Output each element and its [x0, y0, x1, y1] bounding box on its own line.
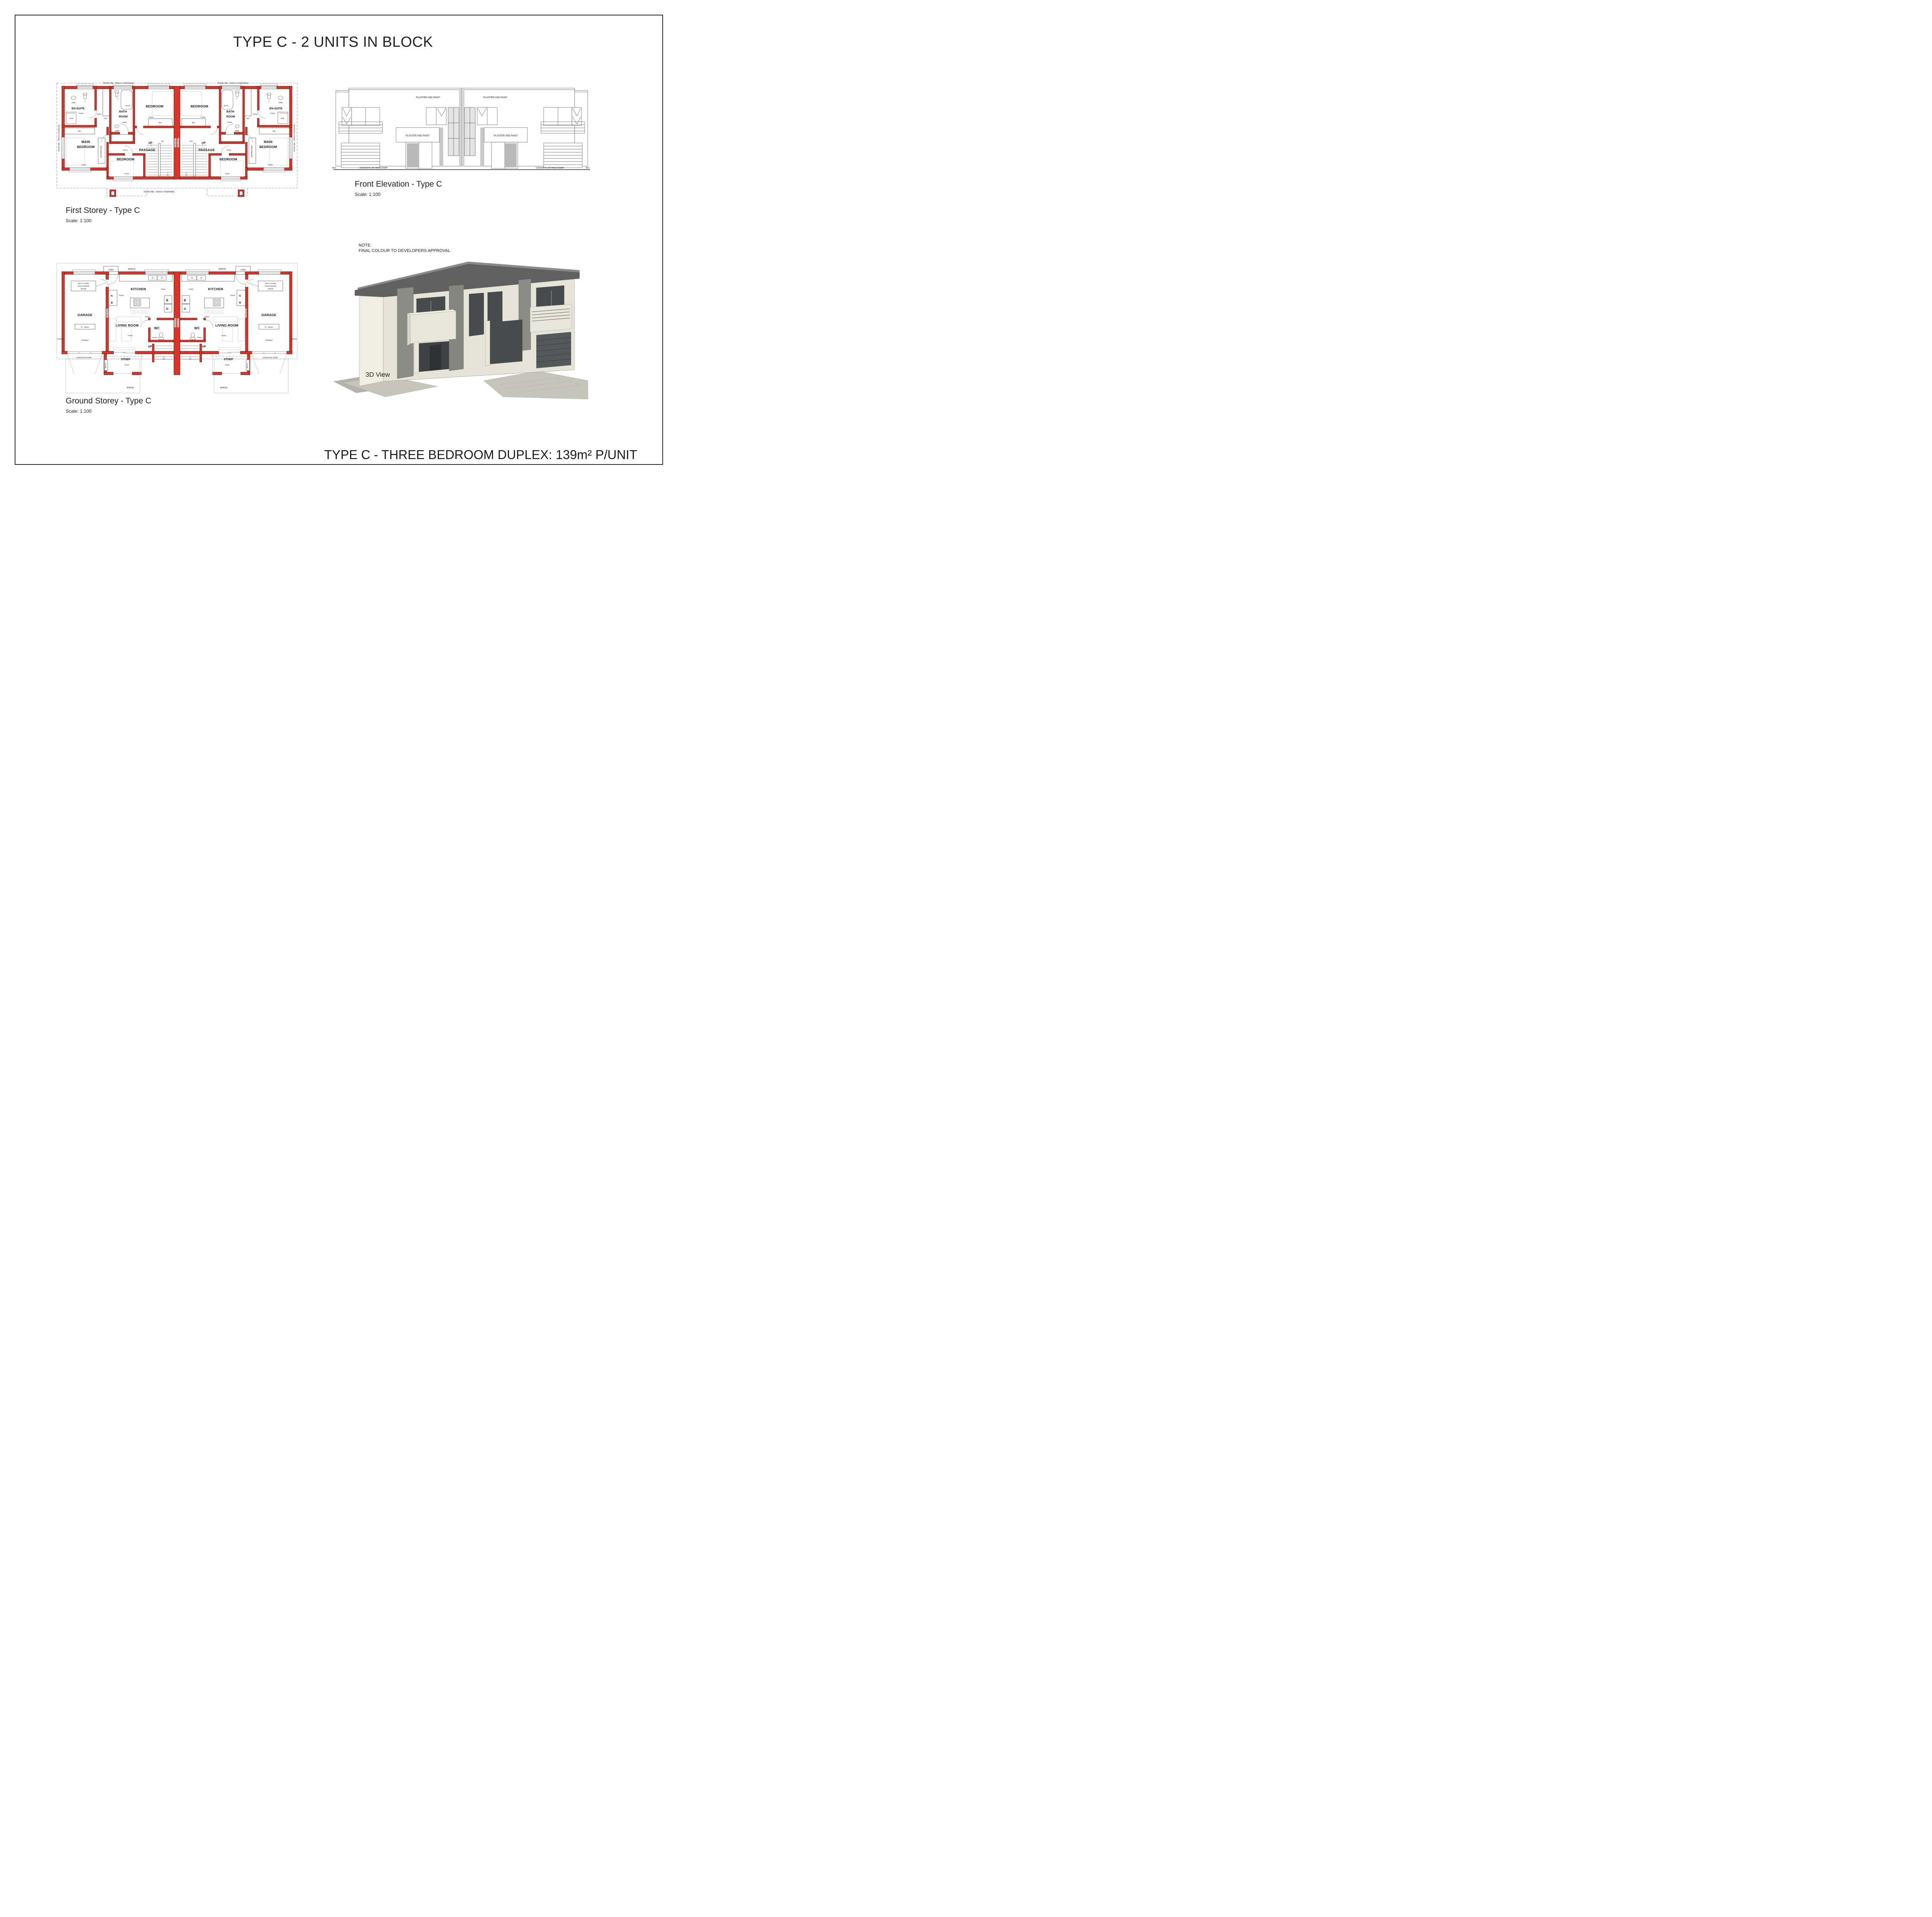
room-label-kitchen: KITCHEN	[131, 287, 146, 291]
bic-label: BIC	[161, 140, 164, 142]
finish-label: TILES	[149, 116, 154, 118]
plaster-label: PLASTER AND PAINT	[494, 134, 518, 137]
apron-label: APRON	[291, 338, 297, 340]
finish-label: TILES	[97, 113, 102, 115]
door-note: DOOR	[268, 288, 273, 290]
fixture-label-hwb: HWB	[235, 130, 239, 132]
room-label-main-bedroom: BEDROOM	[77, 145, 95, 149]
fixture-label-t: T	[236, 98, 237, 100]
apron-label: APRON	[128, 268, 136, 270]
finish-label: TILES	[221, 335, 226, 337]
room-label-bedroom: BEDROOM	[219, 157, 237, 161]
caption-scale: Scale: 1:100	[66, 218, 140, 223]
room-label-bedroom: BEDROOM	[117, 157, 134, 161]
finish-label: TILES	[124, 173, 129, 175]
finish-label: TILES	[230, 294, 235, 296]
finish-label: TILES	[268, 164, 273, 166]
fixture-label-t: T	[117, 98, 118, 100]
room-label-bathroom: ROOM	[119, 115, 128, 118]
room-label-bedroom: BEDROOM	[146, 104, 163, 108]
caption-title: Front Elevation - Type C	[355, 180, 442, 189]
dryer-label: D	[183, 308, 187, 310]
finish-label: TILES	[197, 337, 202, 338]
room-label-passage: PASSAGE	[139, 148, 155, 152]
caption-title: Ground Storey - Type C	[66, 396, 151, 406]
firewall-label: FIREWALL	[177, 318, 179, 327]
apron-label: APRON	[220, 387, 228, 389]
fixture-label-hwb: HWB	[279, 102, 283, 104]
door-note: SELF CLOSE	[265, 282, 276, 284]
room-label-bathroom: BATH-	[226, 110, 235, 113]
braai-label: BRAAI	[246, 363, 248, 368]
level-label: FL: -85mm	[265, 326, 273, 328]
finish-label: TILES	[161, 288, 166, 290]
first-storey-unit-drawing	[62, 84, 174, 197]
firewall-label: FIREWALL	[245, 308, 247, 317]
first-storey-caption: First Storey - Type C Scale: 1:100	[66, 206, 140, 223]
room-label-living: LIVING ROOM	[215, 323, 238, 327]
fixture-label-shr: SHR	[281, 117, 284, 119]
finish-label: TILES	[189, 288, 194, 290]
room-label-garage: GARAGE	[78, 313, 93, 317]
fixture-label-t: T	[269, 101, 270, 103]
colour-note: NOTE: FINAL COLOUR TO DEVELOPERS APPROVA…	[359, 243, 450, 253]
bic-label: BIC	[159, 122, 162, 124]
room-label-bathroom: ROOM	[226, 115, 235, 118]
finish-label: TILES	[227, 121, 232, 123]
stairs	[147, 143, 172, 176]
room-label-living: LIVING ROOM	[116, 323, 138, 327]
finish-label-screed: SCREED	[265, 339, 273, 341]
finish-label: TILES	[201, 116, 206, 118]
room-label-stoep: STOEP	[121, 357, 130, 361]
view-3d	[321, 253, 588, 402]
elevation-caption: Front Elevation - Type C Scale: 1:100	[355, 180, 442, 197]
roofline-label: ROOFLINE - 300mm OVERHANG	[293, 124, 295, 151]
finish-label: TILES	[123, 149, 128, 151]
finish-label: TILES	[152, 337, 157, 338]
ground-storey-caption: Ground Storey - Type C Scale: 1:100	[66, 396, 151, 414]
ground-storey-plan: APRON STEP KITCHEN TILES TILES SELF CLOS…	[56, 261, 298, 398]
note-line2: FINAL COLOUR TO DEVELOPERS APPROVAL	[359, 248, 450, 253]
bic-label: BIC	[247, 117, 250, 119]
room-label-stoep: STOEP	[224, 357, 233, 361]
firewall-label: FIREWALL	[174, 138, 176, 147]
room-label-main-bedroom: MAIN	[82, 140, 90, 144]
stairs-up-label: UP	[148, 141, 152, 145]
ramp-label: CONCRETE RAMP	[76, 357, 92, 359]
finish-label-screed: SCREED	[81, 339, 89, 341]
finish-label: TILES	[225, 173, 230, 175]
roofline-label: ROOFLINE - 600mm OVERHANG	[144, 191, 175, 193]
elevation-unit-drawing	[336, 88, 462, 168]
step-label: STEP	[240, 269, 246, 271]
room-label-en-suite: EN-SUITE	[269, 107, 282, 110]
fridge-label: F	[110, 294, 114, 296]
fridge-label: R	[110, 301, 114, 304]
living-furniture	[110, 316, 141, 350]
fixture-label-t: T	[85, 101, 86, 103]
apron-label: APRON	[219, 268, 226, 270]
finish-label: TILES	[124, 364, 129, 366]
page-title: TYPE C - 2 UNITS IN BLOCK	[198, 34, 468, 51]
room-label-bathroom: BATH-	[119, 110, 128, 113]
bic-label: BIC	[192, 122, 195, 124]
bic-label: BIC	[104, 117, 107, 119]
party-firewall	[174, 86, 180, 179]
bic-label: BIC	[273, 130, 276, 132]
room-label-wc: WC	[194, 326, 200, 330]
room-label-passage: PASSAGE	[199, 148, 215, 152]
caption-title: First Storey - Type C	[66, 206, 140, 215]
step-label: STEP	[108, 269, 114, 271]
dryer-label: D	[165, 308, 169, 310]
first-storey-plan: ROOFLINE - 600mm OVERHANG ROOFLINE - 600…	[56, 80, 298, 205]
fixture-label-hwb: HWB	[71, 102, 76, 104]
ramp-label: CONCRETE RAMP	[262, 357, 278, 359]
ramp-label: CONCRETE OR PAVED RAMP	[536, 167, 564, 169]
door-note: SOLID WOOD	[265, 285, 277, 287]
fixture-label-bath: BATH	[224, 105, 228, 107]
washer-label: W	[165, 299, 169, 301]
bic-label: BIC	[190, 140, 193, 142]
bic-dresser-label: BIC/DRESSER	[251, 145, 253, 158]
apron-label: APRON	[127, 387, 134, 389]
room-label-kitchen: KITCHEN	[208, 287, 223, 291]
ngl-label: NGL	[332, 167, 337, 169]
firewall-label: FIREWALL	[174, 318, 176, 327]
kitchen-fixtures	[106, 274, 172, 313]
room-label-bedroom: BEDROOM	[190, 104, 208, 108]
front-elevation: PLASTER AND PAINT PLASTER AND PAINT PLAS…	[330, 84, 593, 181]
roofline-label: ROOFLINE - 600mm OVERHANG	[103, 82, 134, 85]
plaster-label: PLASTER AND PAINT	[416, 96, 440, 99]
caption-scale: Scale: 1:100	[355, 192, 442, 197]
firewall-label: FIREWALL	[177, 138, 179, 147]
roofline-label: ROOFLINE - 600mm OVERHANG	[218, 82, 248, 85]
garage-door	[341, 143, 380, 168]
bic-label: BIC	[78, 130, 81, 132]
finish-label: TILES	[145, 316, 150, 318]
fridge-label: R	[238, 301, 242, 304]
finish-label: TILES	[119, 294, 124, 296]
drawing-sheet: TYPE C - 2 UNITS IN BLOCK	[0, 0, 678, 479]
caption-scale: Scale: 1:100	[66, 408, 151, 414]
stairs-up-label: UP	[148, 345, 152, 348]
room-label-garage: GARAGE	[262, 313, 277, 317]
finish-label: TILES	[226, 149, 231, 151]
finish-label: TILES	[270, 112, 276, 114]
stairs-up-label: UP	[202, 345, 206, 348]
bic-dresser-label: BIC/DRESSER	[100, 145, 102, 158]
room-label-en-suite: EN-SUITE	[71, 107, 85, 110]
door-note: SELF CLOSE	[78, 282, 89, 284]
level-label: FL: -85mm	[81, 326, 89, 328]
door-note: DOOR	[81, 288, 86, 290]
fixture-label-hwb: HWB	[115, 130, 119, 132]
wc-fixtures	[159, 333, 163, 340]
braai-label: BRAAI	[105, 363, 107, 368]
finish-label: TILES	[122, 121, 127, 123]
plaster-label: PLASTER AND PAINT	[483, 96, 507, 99]
room-label-wc: WC	[154, 326, 160, 330]
room-label-main-bedroom: BEDROOM	[259, 145, 277, 149]
finish-label: TILES	[225, 364, 230, 366]
stairs-up-label: UP	[202, 141, 206, 145]
finish-label: TILES	[128, 335, 133, 337]
plaster-label: PLASTER AND PAINT	[406, 134, 430, 137]
roofline-label: ROOFLINE - 300mm OVERHANG	[58, 124, 60, 151]
finish-label: TILES	[253, 113, 258, 115]
fixture-label-shr: SHR	[70, 117, 73, 119]
finish-label: TILES	[204, 316, 209, 318]
finish-label: TILES	[79, 112, 84, 114]
note-line1: NOTE:	[359, 243, 450, 248]
washer-label: W	[183, 299, 187, 301]
fixture-label-bath: BATH	[126, 105, 130, 107]
ngl-label: NGL	[586, 167, 590, 169]
room-label-main-bedroom: MAIN	[264, 140, 273, 144]
view-3d-caption: 3D View	[366, 371, 390, 379]
firewall-label: FIREWALL	[106, 308, 108, 317]
fridge-label: F	[238, 294, 242, 296]
door-note: SOLID WOOD	[78, 285, 90, 287]
finish-label: TILES	[82, 164, 87, 166]
ramp-label: CONCRETE OR PAVED RAMP	[359, 167, 388, 169]
sheet-footer-title: TYPE C - THREE BEDROOM DUPLEX: 139m² P/U…	[324, 447, 637, 462]
apron-label: APRON	[57, 338, 63, 340]
